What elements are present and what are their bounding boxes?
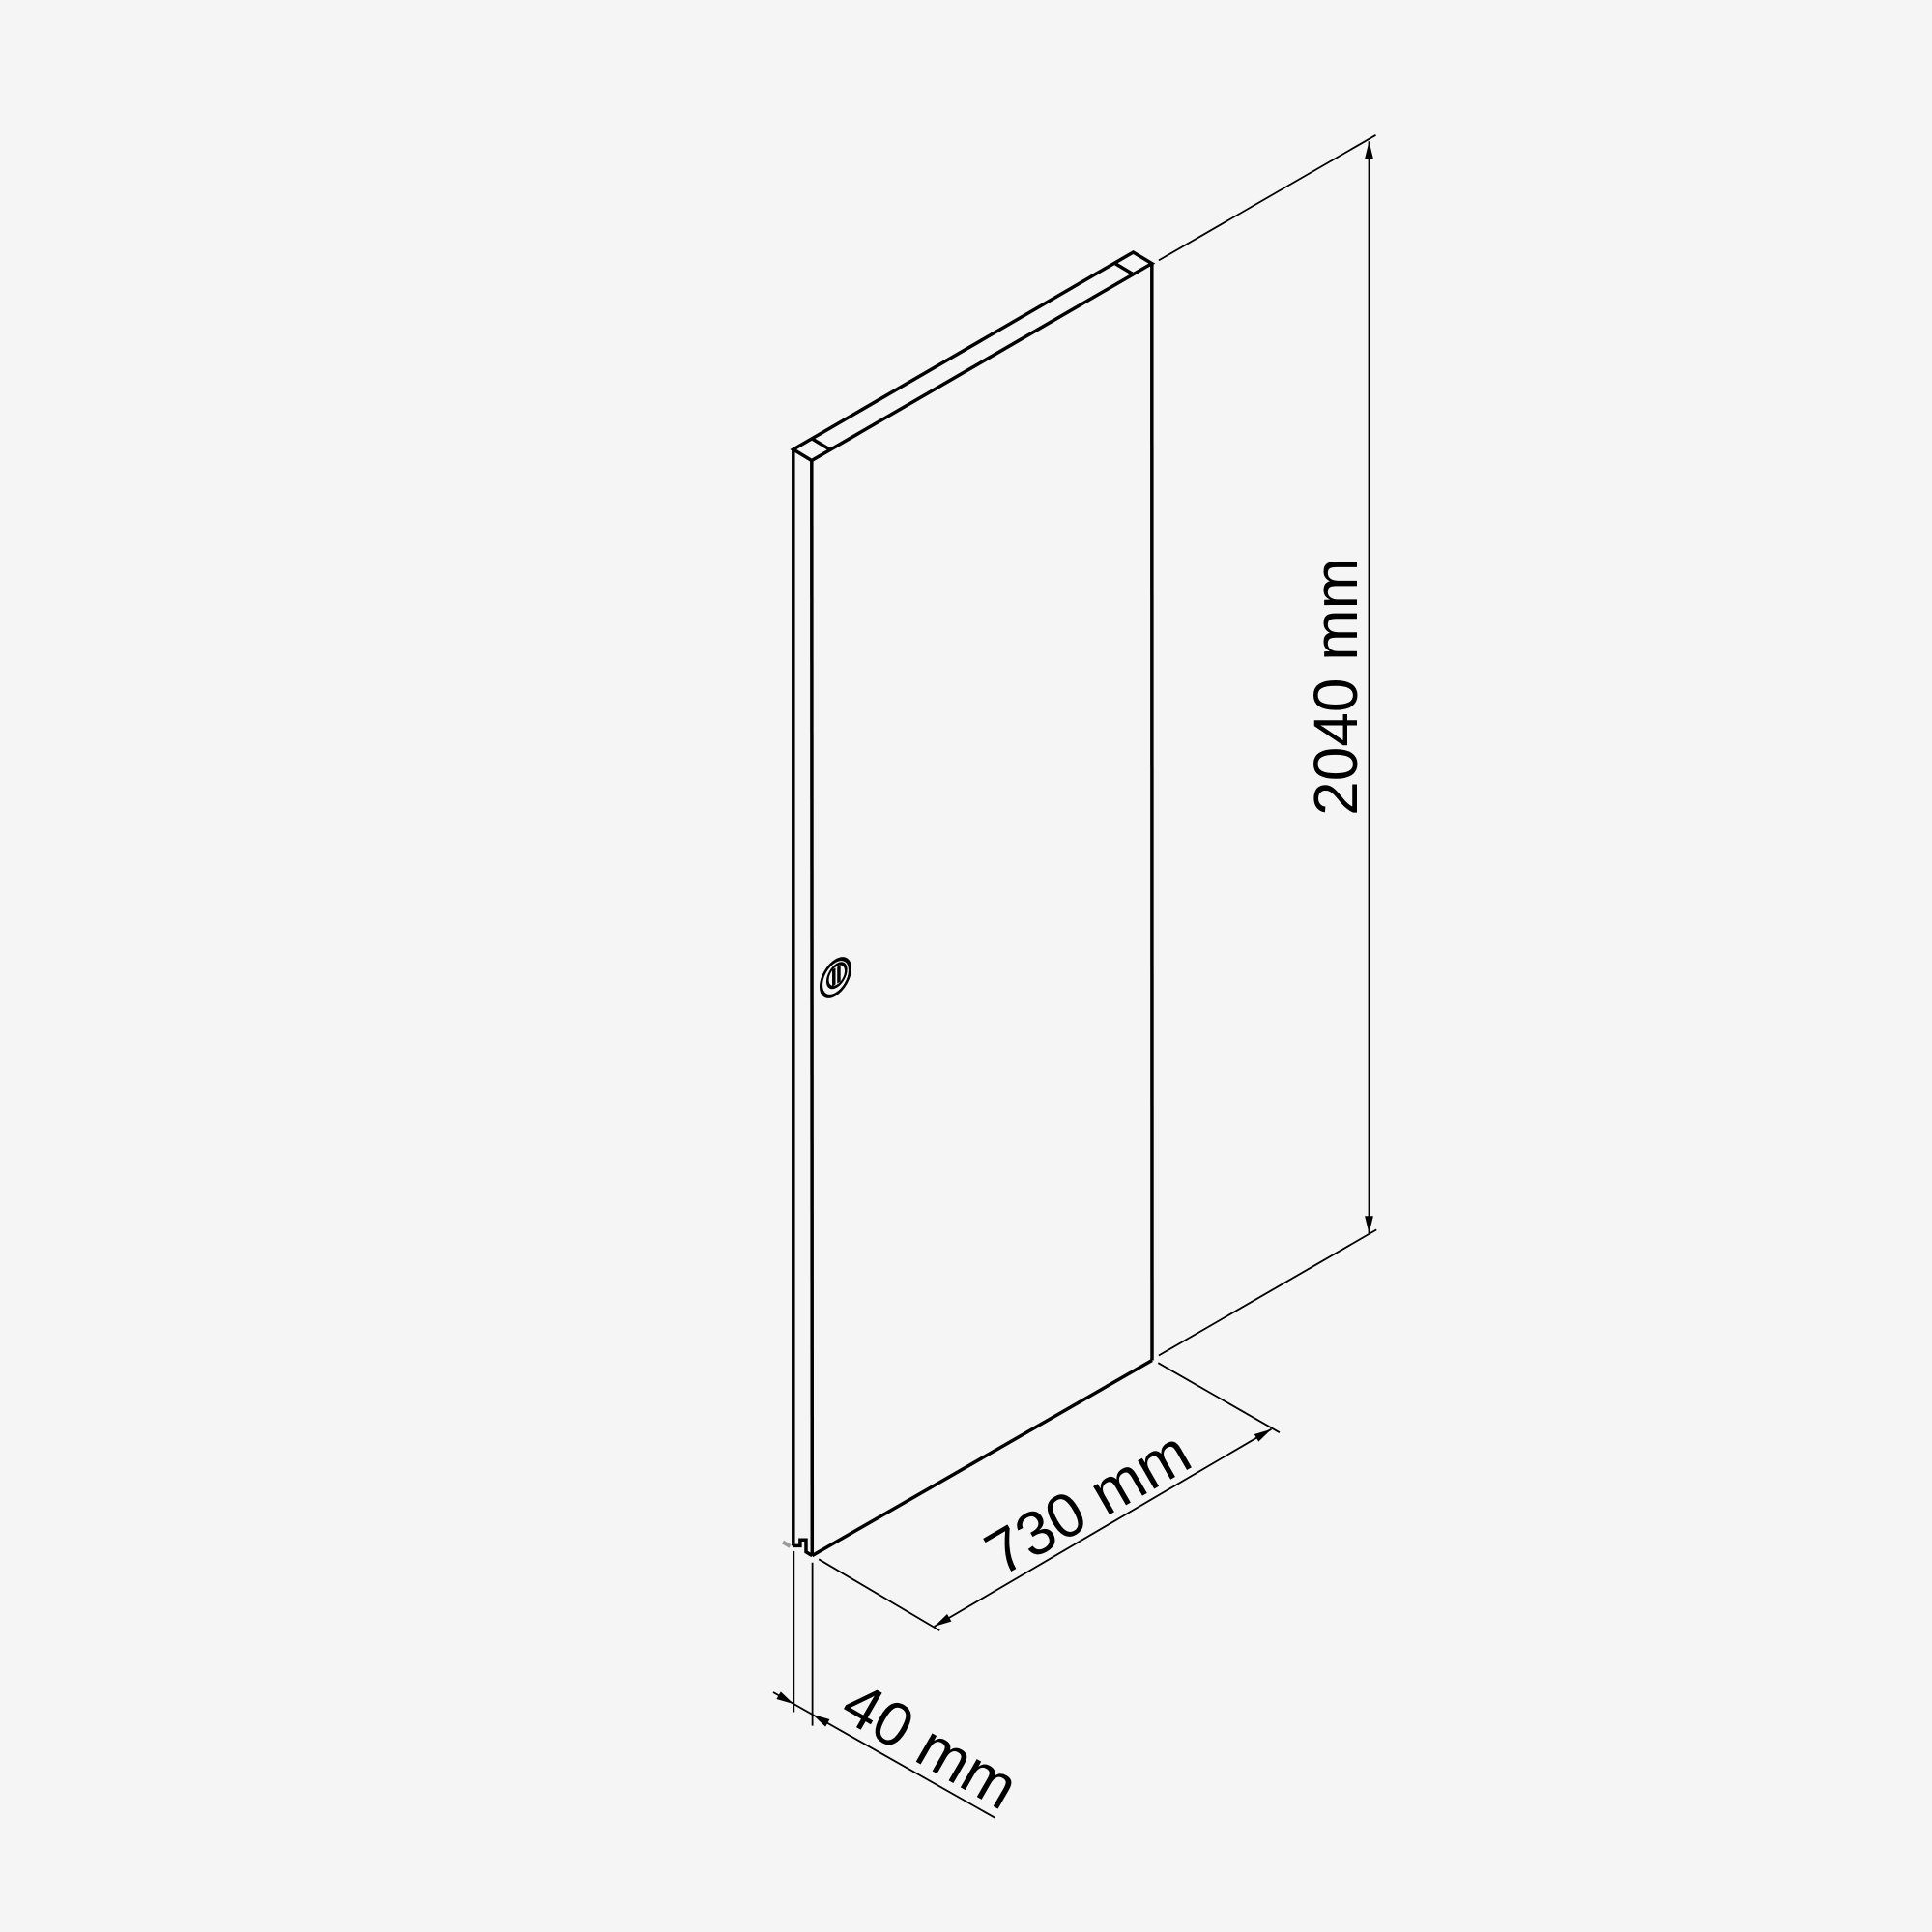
svg-text:2040 mm: 2040 mm (1301, 558, 1370, 816)
